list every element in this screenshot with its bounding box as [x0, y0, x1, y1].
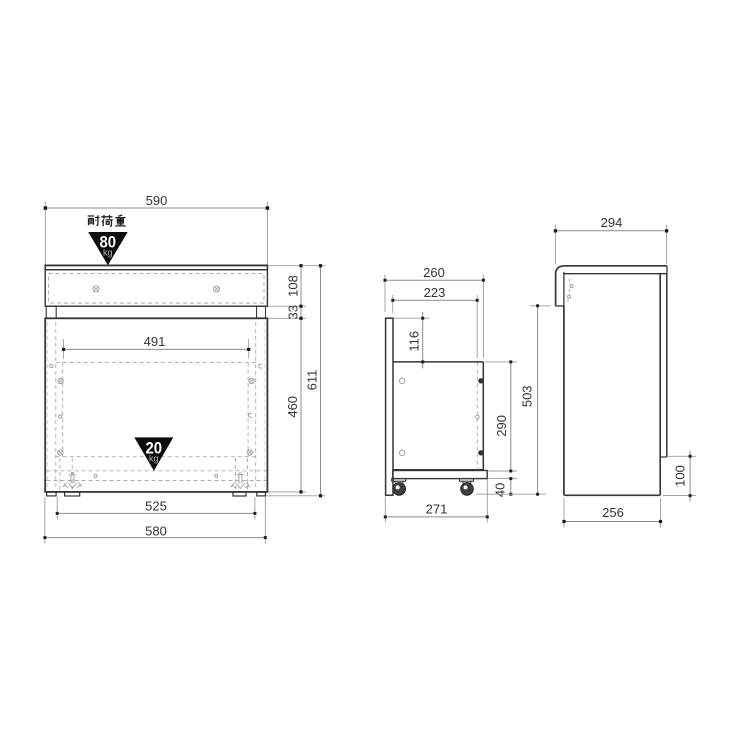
- svg-text:271: 271: [426, 502, 448, 517]
- svg-text:460: 460: [285, 396, 300, 418]
- svg-text:503: 503: [520, 385, 535, 407]
- svg-text:580: 580: [145, 524, 167, 539]
- svg-text:33: 33: [286, 305, 301, 319]
- svg-text:100: 100: [673, 465, 688, 487]
- svg-text:260: 260: [423, 265, 445, 280]
- svg-text:290: 290: [494, 415, 509, 437]
- svg-text:116: 116: [407, 331, 422, 352]
- svg-text:256: 256: [602, 505, 624, 520]
- svg-text:kg: kg: [103, 247, 113, 257]
- svg-text:611: 611: [305, 370, 320, 391]
- svg-text:40: 40: [493, 483, 508, 497]
- svg-text:590: 590: [146, 193, 168, 208]
- svg-text:491: 491: [144, 334, 166, 349]
- svg-text:294: 294: [601, 215, 623, 230]
- svg-text:kg: kg: [149, 454, 159, 464]
- svg-text:108: 108: [286, 275, 301, 297]
- svg-text:525: 525: [145, 499, 167, 514]
- svg-text:223: 223: [424, 285, 446, 300]
